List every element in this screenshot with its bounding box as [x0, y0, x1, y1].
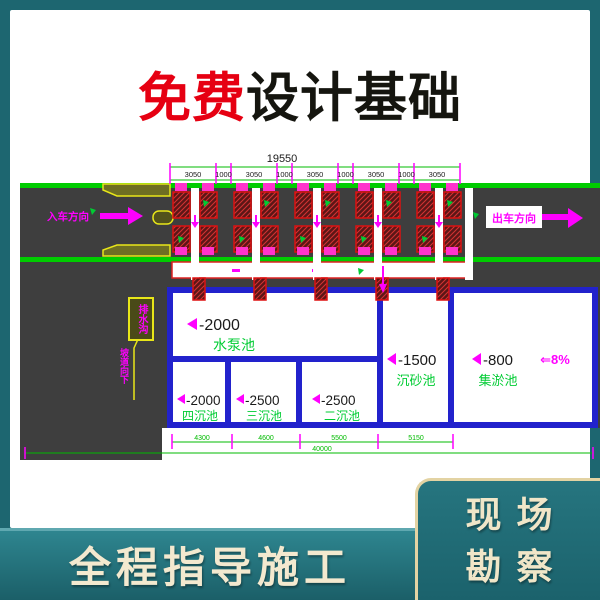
callout-box-label: 排水沟 [136, 304, 146, 334]
dim-seg: 1000 [276, 170, 293, 179]
cad-drawing-svg: 入车方向 出车方向 19550 [20, 150, 600, 470]
pool-name: 沉砂池 [396, 373, 435, 388]
banner-text: 全程指导施工 [0, 528, 420, 600]
callout-leader-label: 坡道向下 [119, 348, 128, 384]
pool-name: 四沉池 [182, 409, 218, 423]
dim-total-bottom: 40000 [312, 446, 332, 453]
content-card: 免费设计基础 [10, 10, 590, 528]
pool-level: -2000 [186, 393, 221, 408]
pools: -2000 水泵池 -2000 四沉池 -2500 三沉池 [167, 266, 598, 428]
dim-seg: 3050 [185, 170, 202, 179]
cad-drawing: 入车方向 出车方向 19550 [20, 150, 600, 470]
pool-name: 水泵池 [213, 337, 255, 353]
dim-seg: 5150 [408, 435, 424, 442]
dim-seg: 1000 [337, 170, 354, 179]
title-rest: 设计基础 [246, 69, 462, 128]
pool-level: -1500 [398, 352, 436, 369]
promo-image: 免费设计基础 [0, 0, 600, 600]
dim-seg: 3050 [368, 170, 385, 179]
pool-name: 三沉池 [246, 409, 282, 423]
side-badge-line2: 勘察 [450, 541, 567, 593]
dim-seg: 1000 [215, 170, 232, 179]
page-title: 免费设计基础 [10, 56, 590, 132]
top-dimension-chain: 19550 3050 1000 3050 1000 [170, 153, 460, 184]
dim-seg: 4600 [258, 435, 274, 442]
side-badge: 现场 勘察 [415, 478, 600, 600]
entry-direction-label: 入车方向 [47, 210, 89, 223]
callout-box: 排水沟 [128, 297, 154, 341]
pool-name: 集淤池 [478, 373, 517, 388]
pool-level: -800 [483, 352, 513, 369]
end-wall [465, 188, 473, 280]
slope-annotation: ⇐8% [540, 352, 570, 367]
dim-seg: 3050 [307, 170, 324, 179]
exit-direction-label: 出车方向 [492, 211, 536, 225]
dim-seg: 4300 [194, 435, 210, 442]
dim-seg: 3050 [429, 170, 446, 179]
side-badge-line1: 现场 [450, 489, 567, 541]
pool-name: 二沉池 [324, 409, 360, 423]
pool-level: -2500 [245, 393, 280, 408]
title-highlight: 免费 [138, 69, 246, 128]
pool-level: -2500 [321, 393, 356, 408]
dim-seg: 1000 [398, 170, 415, 179]
pool-level: -2000 [199, 317, 240, 334]
dim-seg: 5500 [331, 435, 347, 442]
dim-seg: 3050 [246, 170, 263, 179]
